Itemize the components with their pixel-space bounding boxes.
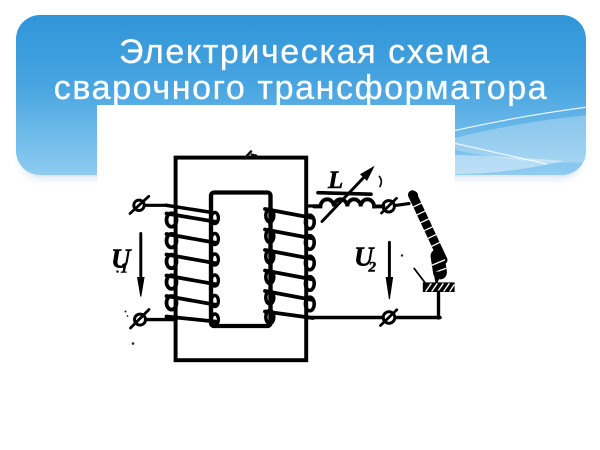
- svg-text:2: 2: [368, 260, 377, 276]
- svg-text:1: 1: [121, 261, 129, 277]
- svg-text:L: L: [327, 167, 343, 194]
